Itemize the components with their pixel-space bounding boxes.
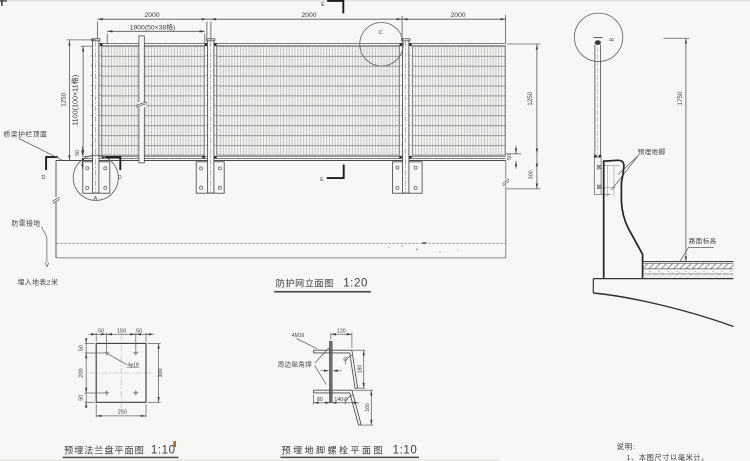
svg-text:路面标高: 路面标高 xyxy=(689,236,717,245)
svg-text:防雷接地: 防雷接地 xyxy=(12,219,41,228)
svg-text:1250: 1250 xyxy=(60,92,67,107)
svg-text:1250: 1250 xyxy=(527,91,534,106)
svg-text:D: D xyxy=(118,175,122,181)
svg-text:4φ18: 4φ18 xyxy=(127,363,139,369)
svg-text:150: 150 xyxy=(117,329,126,335)
svg-text:1750: 1750 xyxy=(677,91,684,106)
svg-text:180: 180 xyxy=(357,365,363,374)
svg-text:160: 160 xyxy=(365,403,371,412)
svg-text:50: 50 xyxy=(75,150,81,156)
svg-text:1100(100×11格): 1100(100×11格) xyxy=(71,75,80,126)
svg-text:埋入地表2米: 埋入地表2米 xyxy=(18,278,59,287)
svg-text:1900(50×38格): 1900(50×38格) xyxy=(130,22,176,31)
svg-text:2000: 2000 xyxy=(301,12,316,19)
svg-text:50: 50 xyxy=(136,329,142,335)
svg-text:300: 300 xyxy=(528,170,534,179)
svg-text:250: 250 xyxy=(118,410,127,416)
svg-text:4M16: 4M16 xyxy=(292,333,305,339)
svg-text:A: A xyxy=(94,196,98,202)
svg-text:C: C xyxy=(379,30,383,36)
svg-text:50: 50 xyxy=(98,329,104,335)
svg-text:2000: 2000 xyxy=(144,12,159,19)
svg-text:1:10: 1:10 xyxy=(393,445,418,457)
svg-text:50: 50 xyxy=(78,395,84,401)
svg-text:说明:: 说明: xyxy=(617,442,636,451)
svg-text:1、本图尺寸以毫米计。: 1、本图尺寸以毫米计。 xyxy=(627,453,709,461)
svg-text:预埋地脚: 预埋地脚 xyxy=(638,147,666,156)
svg-text:B: B xyxy=(610,38,616,42)
svg-text:防护网立面图: 防护网立面图 xyxy=(276,277,334,288)
svg-text:桥梁护栏顶面: 桥梁护栏顶面 xyxy=(4,130,48,139)
svg-text:1:20: 1:20 xyxy=(343,278,368,290)
svg-text:50: 50 xyxy=(78,345,84,351)
svg-text:预埋法兰盘平面图: 预埋法兰盘平面图 xyxy=(64,444,145,455)
svg-text:2000: 2000 xyxy=(450,12,465,19)
svg-text:1:10: 1:10 xyxy=(151,445,176,457)
svg-text:200: 200 xyxy=(78,368,84,377)
svg-text:D: D xyxy=(42,175,46,181)
svg-text:预埋地脚螺栓平面图: 预埋地脚螺栓平面图 xyxy=(282,444,385,455)
svg-text:120: 120 xyxy=(337,328,346,334)
svg-text:80: 80 xyxy=(317,397,323,403)
svg-text:周边贴角焊: 周边贴角焊 xyxy=(278,360,313,369)
svg-text:300: 300 xyxy=(158,368,164,377)
svg-text:50: 50 xyxy=(507,154,513,160)
